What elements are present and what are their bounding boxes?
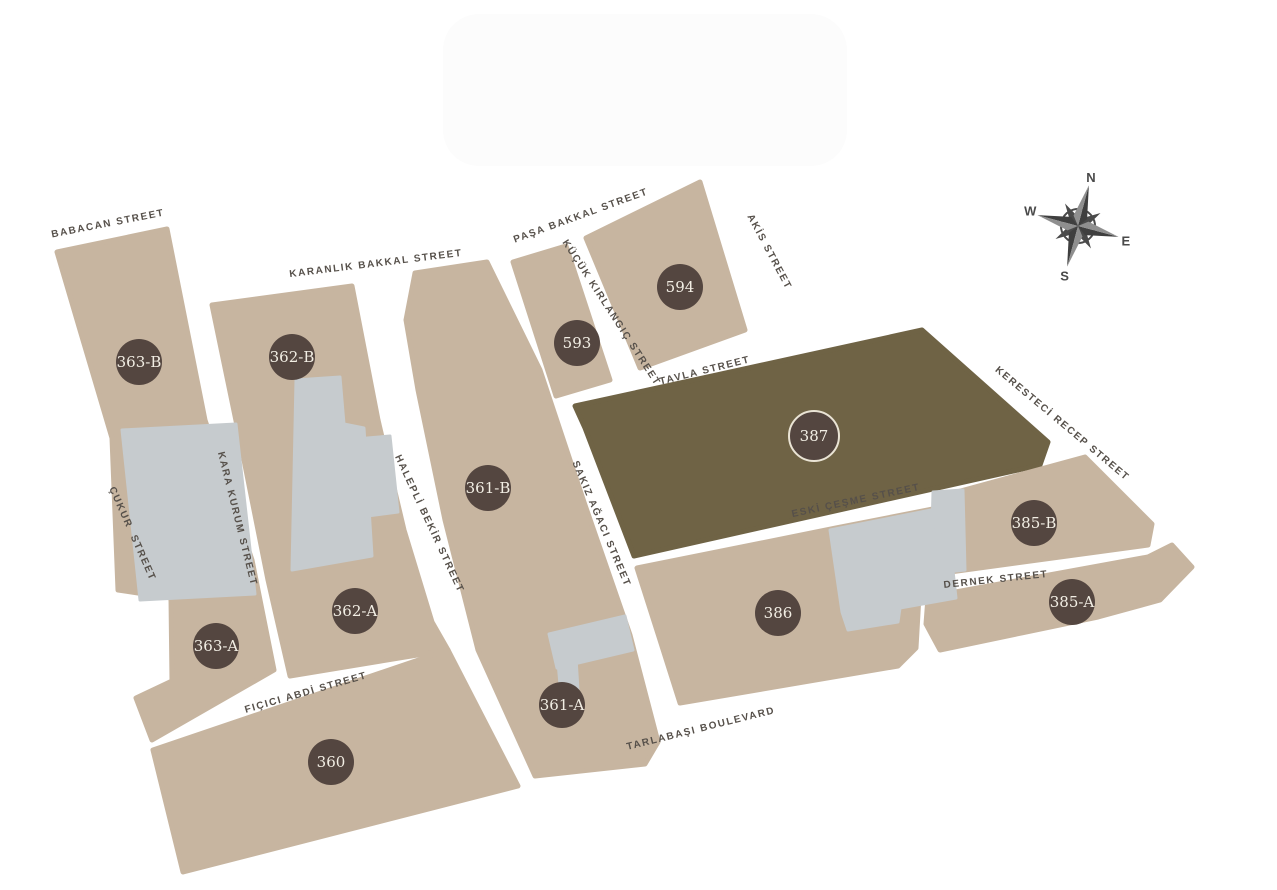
block-badge-594[interactable]: 594 — [657, 264, 703, 310]
compass-south-label: S — [1060, 269, 1069, 284]
compass-long-points — [1027, 175, 1130, 278]
compass-east-label: E — [1121, 233, 1130, 248]
compass-rose: N E S W — [1006, 155, 1147, 299]
block-badge-361-b[interactable]: 361-B — [465, 465, 511, 511]
block-badge-360[interactable]: 360 — [308, 739, 354, 785]
block-badge-387[interactable]: 387 — [788, 410, 840, 462]
compass-north-label: N — [1086, 170, 1095, 185]
block-badge-362-b[interactable]: 362-B — [269, 334, 315, 380]
block-badge-385-a[interactable]: 385-A — [1049, 579, 1095, 625]
block-badge-362-a[interactable]: 362-A — [332, 588, 378, 634]
block-badge-361-a[interactable]: 361-A — [539, 682, 585, 728]
compass-west-label: W — [1024, 204, 1037, 219]
site-map: N E S W BABACAN STREETKARANLIK BAKKAL ST… — [0, 0, 1277, 890]
block-badge-385-b[interactable]: 385-B — [1011, 500, 1057, 546]
building-footprint — [344, 436, 398, 518]
block-badge-386[interactable]: 386 — [755, 590, 801, 636]
block-badge-593[interactable]: 593 — [554, 320, 600, 366]
block-badge-363-a[interactable]: 363-A — [193, 623, 239, 669]
block-badge-363-b[interactable]: 363-B — [116, 339, 162, 385]
logo-placeholder — [443, 14, 847, 166]
